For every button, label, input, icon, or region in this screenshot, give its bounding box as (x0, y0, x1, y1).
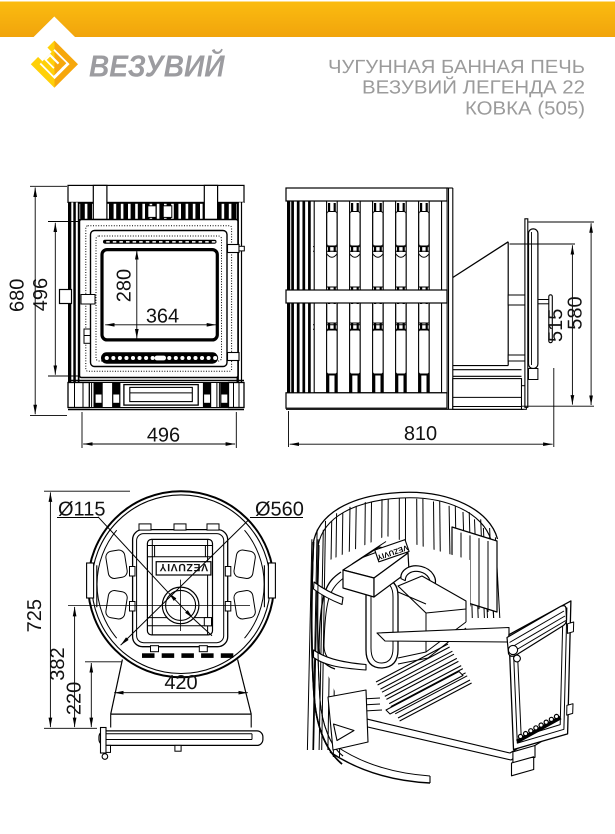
svg-text:496: 496 (30, 278, 52, 311)
svg-text:220: 220 (64, 682, 86, 715)
svg-text:680: 680 (7, 279, 29, 312)
svg-text:810: 810 (404, 423, 437, 445)
svg-text:ВЕЗУВИЙ: ВЕЗУВИЙ (89, 49, 225, 84)
svg-text:382: 382 (47, 647, 69, 680)
svg-text:364: 364 (146, 305, 179, 327)
svg-text:515: 515 (545, 309, 567, 342)
svg-text:ЧУГУННАЯ БАННАЯ ПЕЧЬ: ЧУГУННАЯ БАННАЯ ПЕЧЬ (328, 57, 585, 78)
svg-text:Ø560: Ø560 (255, 498, 304, 520)
svg-text:280: 280 (114, 269, 136, 302)
svg-text:580: 580 (565, 296, 587, 329)
svg-text:496: 496 (147, 424, 180, 446)
svg-text:420: 420 (164, 672, 197, 694)
svg-text:725: 725 (24, 599, 46, 632)
svg-text:ВЕЗУВИЙ ЛЕГЕНДА 22: ВЕЗУВИЙ ЛЕГЕНДА 22 (362, 76, 585, 99)
svg-text:КОВКА (505): КОВКА (505) (465, 98, 585, 119)
svg-text:Ø115: Ø115 (58, 498, 105, 520)
